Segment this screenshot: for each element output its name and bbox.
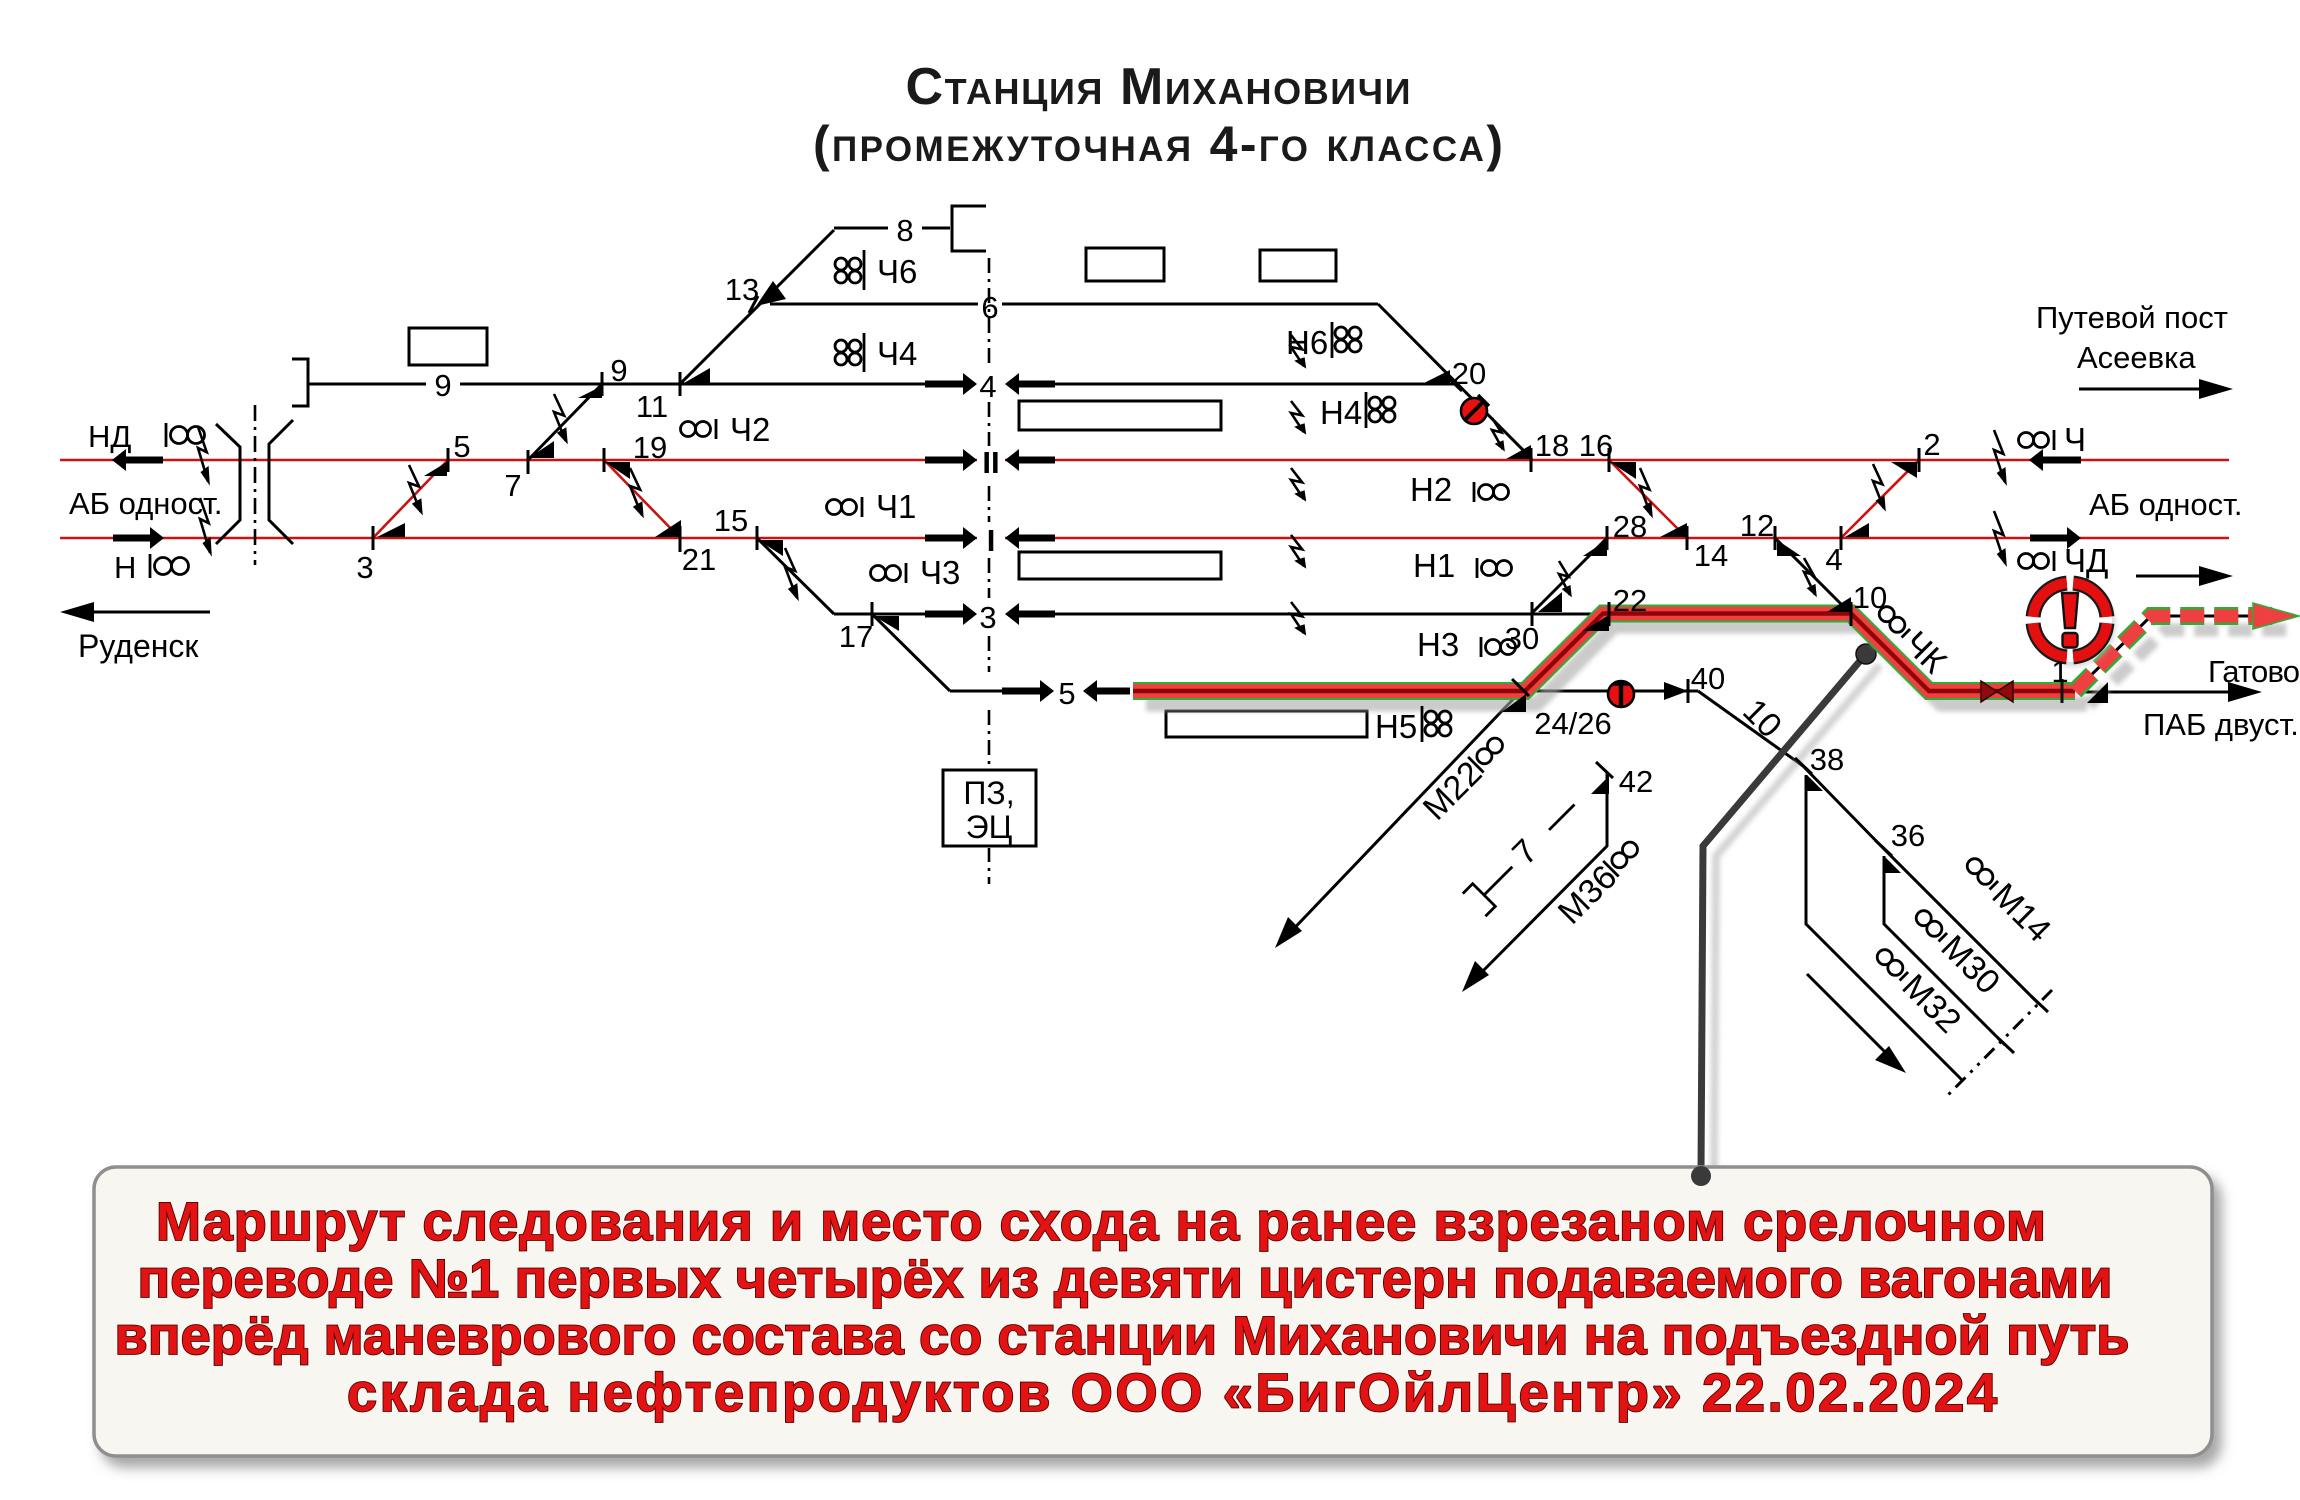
svg-text:6: 6 (981, 290, 998, 325)
svg-text:8: 8 (896, 213, 913, 248)
svg-text:15: 15 (714, 503, 748, 538)
svg-text:9: 9 (610, 353, 627, 388)
svg-text:НД: НД (88, 419, 131, 454)
svg-text:АБ одност.: АБ одност. (69, 486, 223, 521)
svg-text:22: 22 (1613, 583, 1647, 618)
svg-text:28: 28 (1613, 509, 1647, 544)
svg-text:Н6: Н6 (1286, 324, 1328, 361)
svg-text:40: 40 (1691, 661, 1725, 696)
svg-text:ПАБ двуст.: ПАБ двуст. (2143, 707, 2299, 742)
svg-text:Н3: Н3 (1417, 626, 1459, 663)
svg-text:Ч1: Ч1 (876, 488, 916, 525)
svg-text:11: 11 (636, 389, 668, 424)
svg-text:4: 4 (1825, 542, 1842, 577)
svg-text:7: 7 (504, 468, 521, 503)
svg-text:Путевой пост: Путевой пост (2036, 300, 2228, 335)
svg-text:Маршрут следования и место схо: Маршрут следования и место схода на ране… (156, 1192, 2046, 1252)
svg-text:Гатово: Гатово (2208, 654, 2300, 689)
svg-text:Станция Михановичи: Станция Михановичи (906, 58, 1411, 116)
svg-text:Ч6: Ч6 (877, 253, 917, 290)
svg-text:38: 38 (1810, 742, 1844, 777)
svg-text:3: 3 (356, 550, 373, 585)
svg-text:19: 19 (633, 430, 667, 465)
svg-text:Руденск: Руденск (78, 628, 199, 664)
svg-text:36: 36 (1891, 818, 1925, 853)
svg-text:Ч3: Ч3 (920, 554, 960, 591)
svg-text:переводе №1 первых четырёх из: переводе №1 первых четырёх из девяти цис… (138, 1249, 2113, 1309)
svg-text:20: 20 (1452, 356, 1486, 391)
svg-text:Н4: Н4 (1320, 394, 1362, 431)
svg-text:21: 21 (682, 542, 716, 577)
svg-text:9: 9 (434, 368, 451, 403)
svg-text:18: 18 (1535, 428, 1569, 463)
svg-text:склада нефтепродуктов ООО «Би: склада нефтепродуктов ООО «БигОйлЦентр» … (347, 1363, 1997, 1423)
svg-text:3: 3 (979, 600, 996, 635)
svg-text:II: II (982, 445, 999, 480)
svg-text:1: 1 (2051, 654, 2068, 689)
svg-text:Ч4: Ч4 (877, 335, 917, 372)
svg-text:24/26: 24/26 (1534, 706, 1612, 741)
svg-text:Н: Н (114, 550, 136, 585)
svg-text:5: 5 (453, 429, 470, 464)
svg-text:(промежуточная 4-го класса): (промежуточная 4-го класса) (813, 116, 1503, 172)
svg-text:I: I (987, 523, 996, 558)
svg-text:Асеевка: Асеевка (2077, 340, 2196, 375)
svg-text:АБ одност.: АБ одност. (2089, 487, 2243, 522)
svg-text:Н2: Н2 (1410, 471, 1452, 508)
svg-text:Н1: Н1 (1413, 547, 1455, 584)
svg-text:4: 4 (979, 369, 996, 404)
svg-text:16: 16 (1579, 428, 1613, 463)
svg-text:12: 12 (1740, 508, 1774, 543)
svg-text:ПЗ,: ПЗ, (963, 775, 1014, 811)
svg-text:ЧД: ЧД (2064, 542, 2108, 579)
svg-text:13: 13 (725, 272, 759, 307)
svg-text:2: 2 (1923, 427, 1940, 462)
svg-text:14: 14 (1694, 538, 1728, 573)
svg-text:5: 5 (1058, 676, 1075, 711)
svg-text:Ч: Ч (2064, 421, 2086, 458)
svg-text:Ч2: Ч2 (730, 411, 770, 448)
svg-text:вперёд маневрового состава со: вперёд маневрового состава со станции Ми… (115, 1306, 2130, 1366)
svg-text:42: 42 (1619, 764, 1653, 799)
svg-text:Н5: Н5 (1375, 708, 1417, 745)
svg-text:ЭЦ: ЭЦ (966, 809, 1013, 845)
svg-text:17: 17 (839, 619, 873, 654)
